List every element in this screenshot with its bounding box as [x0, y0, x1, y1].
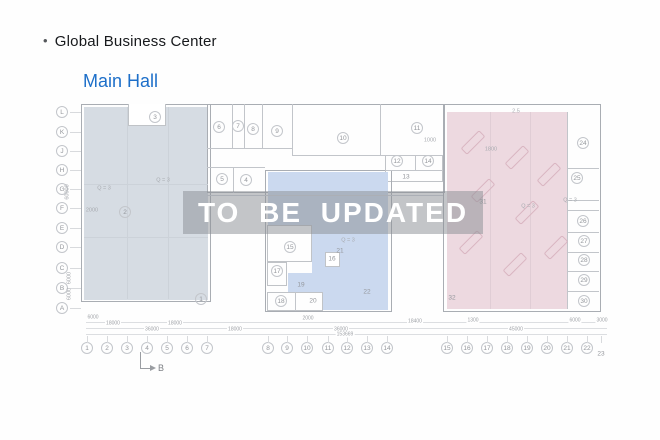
plan-wall	[168, 107, 169, 299]
axis-col-label: 12	[341, 342, 353, 354]
room-number: 9	[271, 125, 283, 137]
note-text: 6000	[67, 288, 73, 300]
dim-text: 1300	[466, 319, 479, 324]
axis-col-tick	[127, 336, 128, 343]
dim-text: 18000	[167, 322, 183, 327]
axis-col-tick	[487, 336, 488, 343]
axis-row-label: F	[56, 202, 68, 214]
room-number: 26	[577, 215, 589, 227]
axis-row-tick	[70, 308, 81, 309]
axis-col-tick	[147, 336, 148, 343]
axis-col-tick	[547, 336, 548, 343]
room-number: 13	[402, 174, 409, 181]
room-number: 16	[328, 256, 335, 263]
watermark-text: TO BE UPDATED	[198, 197, 468, 229]
room-number: 15	[284, 241, 296, 253]
room-number: 12	[391, 155, 403, 167]
axis-col-label: 11	[322, 342, 334, 354]
note-text: 2.5	[512, 109, 520, 115]
axis-col-tick	[587, 336, 588, 343]
plan-wall	[262, 104, 263, 148]
dim-text: 36000	[144, 328, 160, 333]
room-number: 1	[195, 293, 207, 305]
plan-wall	[567, 252, 599, 253]
dim-text: 2000	[301, 317, 314, 322]
plan-wall	[295, 292, 296, 311]
dim-text: 6000	[568, 319, 581, 324]
axis-col-label: 4	[141, 342, 153, 354]
axis-col-tick	[328, 336, 329, 343]
axis-col-label: 9	[281, 342, 293, 354]
axis-col-label: 5	[161, 342, 173, 354]
axis-col-label: 6	[181, 342, 193, 354]
axis-col-tick	[287, 336, 288, 343]
plan-wall	[207, 167, 265, 168]
axis-col-tick	[527, 336, 528, 343]
plan-wall	[127, 107, 128, 299]
plan-wall	[567, 271, 599, 272]
axis-col-tick	[87, 336, 88, 343]
room-number: 27	[578, 235, 590, 247]
plan-wall	[292, 104, 293, 155]
axis-row-tick	[70, 112, 81, 113]
axis-row-tick	[70, 268, 81, 269]
plan-wall	[244, 104, 245, 148]
note-text: Q = 3	[97, 186, 111, 192]
axis-row-label: L	[56, 106, 68, 118]
room-number: 11	[411, 122, 423, 134]
plan-wall	[207, 148, 292, 149]
axis-col-tick	[367, 336, 368, 343]
dim-text: 153669	[336, 333, 355, 338]
axis-col-tick	[467, 336, 468, 343]
hatch-mark-icon	[461, 130, 486, 155]
axis-col-tick	[207, 336, 208, 343]
axis-col-tick	[268, 336, 269, 343]
axis-col-label: 17	[481, 342, 493, 354]
axis-row-tick	[70, 132, 81, 133]
axis-col-label: 2	[101, 342, 113, 354]
room-number: 19	[297, 282, 304, 289]
axis-col-tick	[167, 336, 168, 343]
room-number: 14	[422, 155, 434, 167]
axis-col-tick	[307, 336, 308, 343]
room-number: 25	[571, 172, 583, 184]
axis-row-tick	[70, 247, 81, 248]
room-number: 22	[363, 289, 370, 296]
section-marker-label: B	[158, 363, 164, 373]
plan-wall	[140, 352, 141, 368]
room-number: 30	[578, 295, 590, 307]
axis-col-tick	[601, 336, 602, 343]
room-number: 4	[240, 174, 252, 186]
dim-text: 45000	[508, 328, 524, 333]
plan-wall	[385, 170, 443, 171]
room-number: 20	[309, 298, 316, 305]
axis-col-tick	[387, 336, 388, 343]
room-number: 2	[119, 206, 131, 218]
hatch-mark-icon	[505, 145, 530, 170]
plan-wall	[292, 155, 443, 156]
axis-col-label: 14	[381, 342, 393, 354]
note-text: Q = 3	[156, 178, 170, 184]
note-text: 60000	[65, 184, 71, 199]
axis-row-label: J	[56, 145, 68, 157]
axis-row-tick	[70, 228, 81, 229]
note-text: 1000	[424, 138, 436, 144]
axis-row-tick	[70, 151, 81, 152]
axis-col-label: 19	[521, 342, 533, 354]
axis-row-label: K	[56, 126, 68, 138]
axis-col-tick	[107, 336, 108, 343]
room-number: 5	[216, 173, 228, 185]
note-text: 6000	[67, 272, 73, 284]
hatch-mark-icon	[503, 252, 528, 277]
watermark-band: TO BE UPDATED	[183, 191, 483, 234]
room-number: 7	[232, 120, 244, 132]
axis-row-tick	[70, 208, 81, 209]
note-text: Q = 3	[521, 204, 535, 210]
plan-wall	[567, 291, 599, 292]
plan-wall	[567, 232, 599, 233]
axis-col-label: 15	[441, 342, 453, 354]
plan-wall	[380, 104, 381, 155]
dim-text: 6000	[86, 316, 99, 321]
axis-col-label: 21	[561, 342, 573, 354]
dim-text: 18000	[105, 322, 121, 327]
axis-col-label: 7	[201, 342, 213, 354]
room-number: 6	[213, 121, 225, 133]
room-number: 32	[448, 295, 455, 302]
note-text: Q = 3	[341, 238, 355, 244]
axis-row-label: E	[56, 222, 68, 234]
room-number: 17	[271, 265, 283, 277]
room-number: 28	[578, 254, 590, 266]
axis-col-label: 18	[501, 342, 513, 354]
note-text: Q = 3	[563, 198, 577, 204]
axis-row-tick	[70, 170, 81, 171]
floor-plan-page: •Global Business Center Main Hall LKJHGF…	[0, 0, 660, 440]
plan-wall	[567, 168, 599, 169]
plan-wall	[233, 167, 234, 193]
note-text: 2000	[86, 208, 98, 214]
axis-col-tick	[567, 336, 568, 343]
axis-col-label: 23	[597, 351, 604, 358]
plan-wall	[84, 237, 208, 238]
axis-col-label: 1	[81, 342, 93, 354]
hatch-mark-icon	[544, 235, 569, 260]
room-number: 24	[577, 137, 589, 149]
plan-wall	[86, 322, 607, 323]
axis-col-tick	[447, 336, 448, 343]
room-number: 8	[247, 123, 259, 135]
room-number: 21	[336, 248, 343, 255]
room-number: 29	[578, 274, 590, 286]
hatch-mark-icon	[537, 162, 562, 187]
dim-text: 18000	[227, 328, 243, 333]
axis-col-label: 16	[461, 342, 473, 354]
plan-wall	[490, 112, 491, 309]
axis-row-tick	[70, 189, 81, 190]
note-text: 1800	[485, 147, 497, 153]
plan-wall	[415, 155, 416, 170]
dim-text: 18400	[407, 320, 423, 325]
axis-row-label: D	[56, 241, 68, 253]
axis-col-label: 22	[581, 342, 593, 354]
plan-wall	[567, 210, 599, 211]
axis-col-tick	[187, 336, 188, 343]
room-number: 18	[275, 295, 287, 307]
axis-col-label: 3	[121, 342, 133, 354]
axis-col-label: 8	[262, 342, 274, 354]
dim-text: 3000	[595, 319, 608, 324]
axis-col-label: 10	[301, 342, 313, 354]
axis-row-label: A	[56, 302, 68, 314]
axis-col-tick	[507, 336, 508, 343]
axis-col-label: 20	[541, 342, 553, 354]
room-number: 3	[149, 111, 161, 123]
room-number: 10	[337, 132, 349, 144]
section-arrow-icon	[150, 365, 156, 371]
axis-col-label: 13	[361, 342, 373, 354]
axis-row-label: H	[56, 164, 68, 176]
